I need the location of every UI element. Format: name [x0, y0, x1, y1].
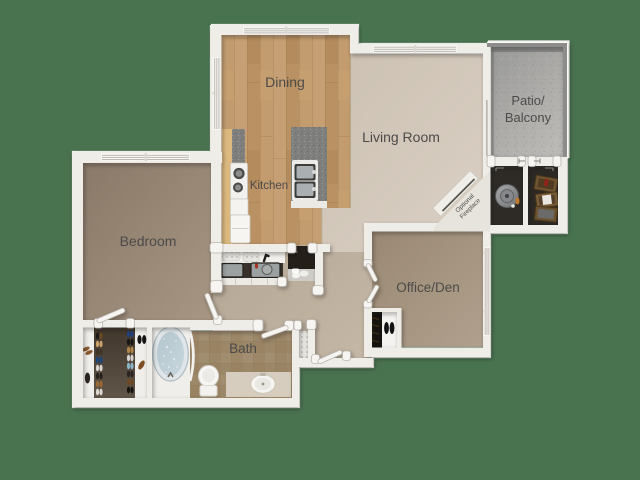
svg-text:Kitchen: Kitchen	[250, 180, 288, 192]
svg-text:Bath: Bath	[229, 341, 257, 356]
svg-text:Dining: Dining	[265, 74, 305, 90]
svg-text:Bedroom: Bedroom	[120, 233, 177, 249]
svg-text:Office/Den: Office/Den	[396, 280, 460, 295]
svg-text:Living Room: Living Room	[362, 129, 440, 145]
